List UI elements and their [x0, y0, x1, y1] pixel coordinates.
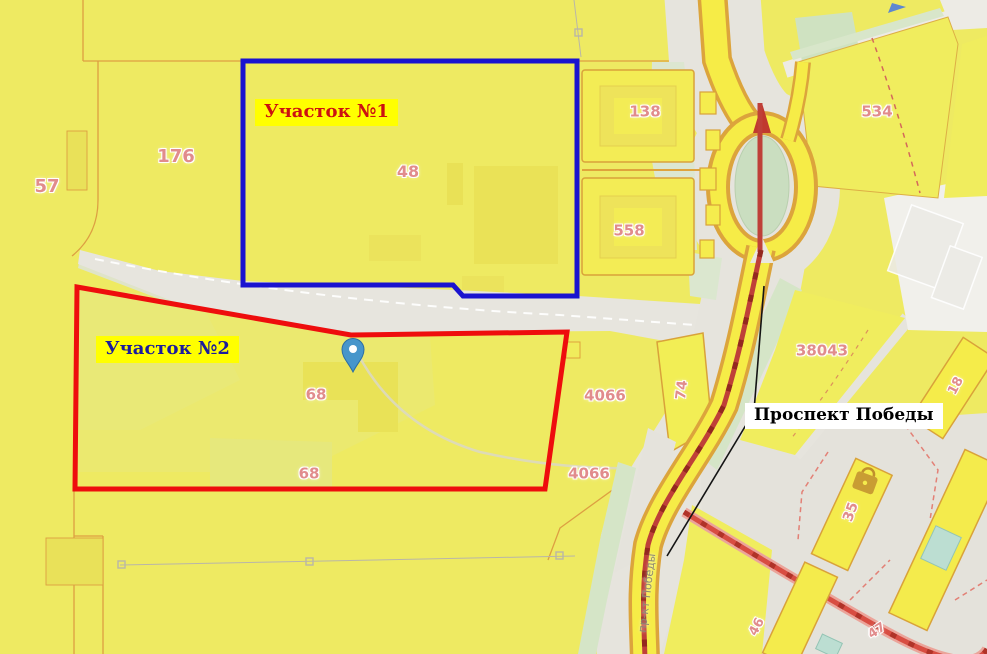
plot2-label: Участок №2	[96, 336, 239, 363]
map-pin[interactable]	[342, 339, 364, 373]
plot1-label: Участок №1	[255, 99, 398, 126]
map-canvas[interactable]: 57 176 48 138 558 534 38043 4066 4066 74…	[0, 0, 987, 654]
annotation-overlay	[0, 0, 987, 654]
plot2-outline	[75, 287, 567, 489]
road-callout-label: Проспект Победы	[745, 403, 943, 429]
plot1-outline	[243, 61, 577, 296]
